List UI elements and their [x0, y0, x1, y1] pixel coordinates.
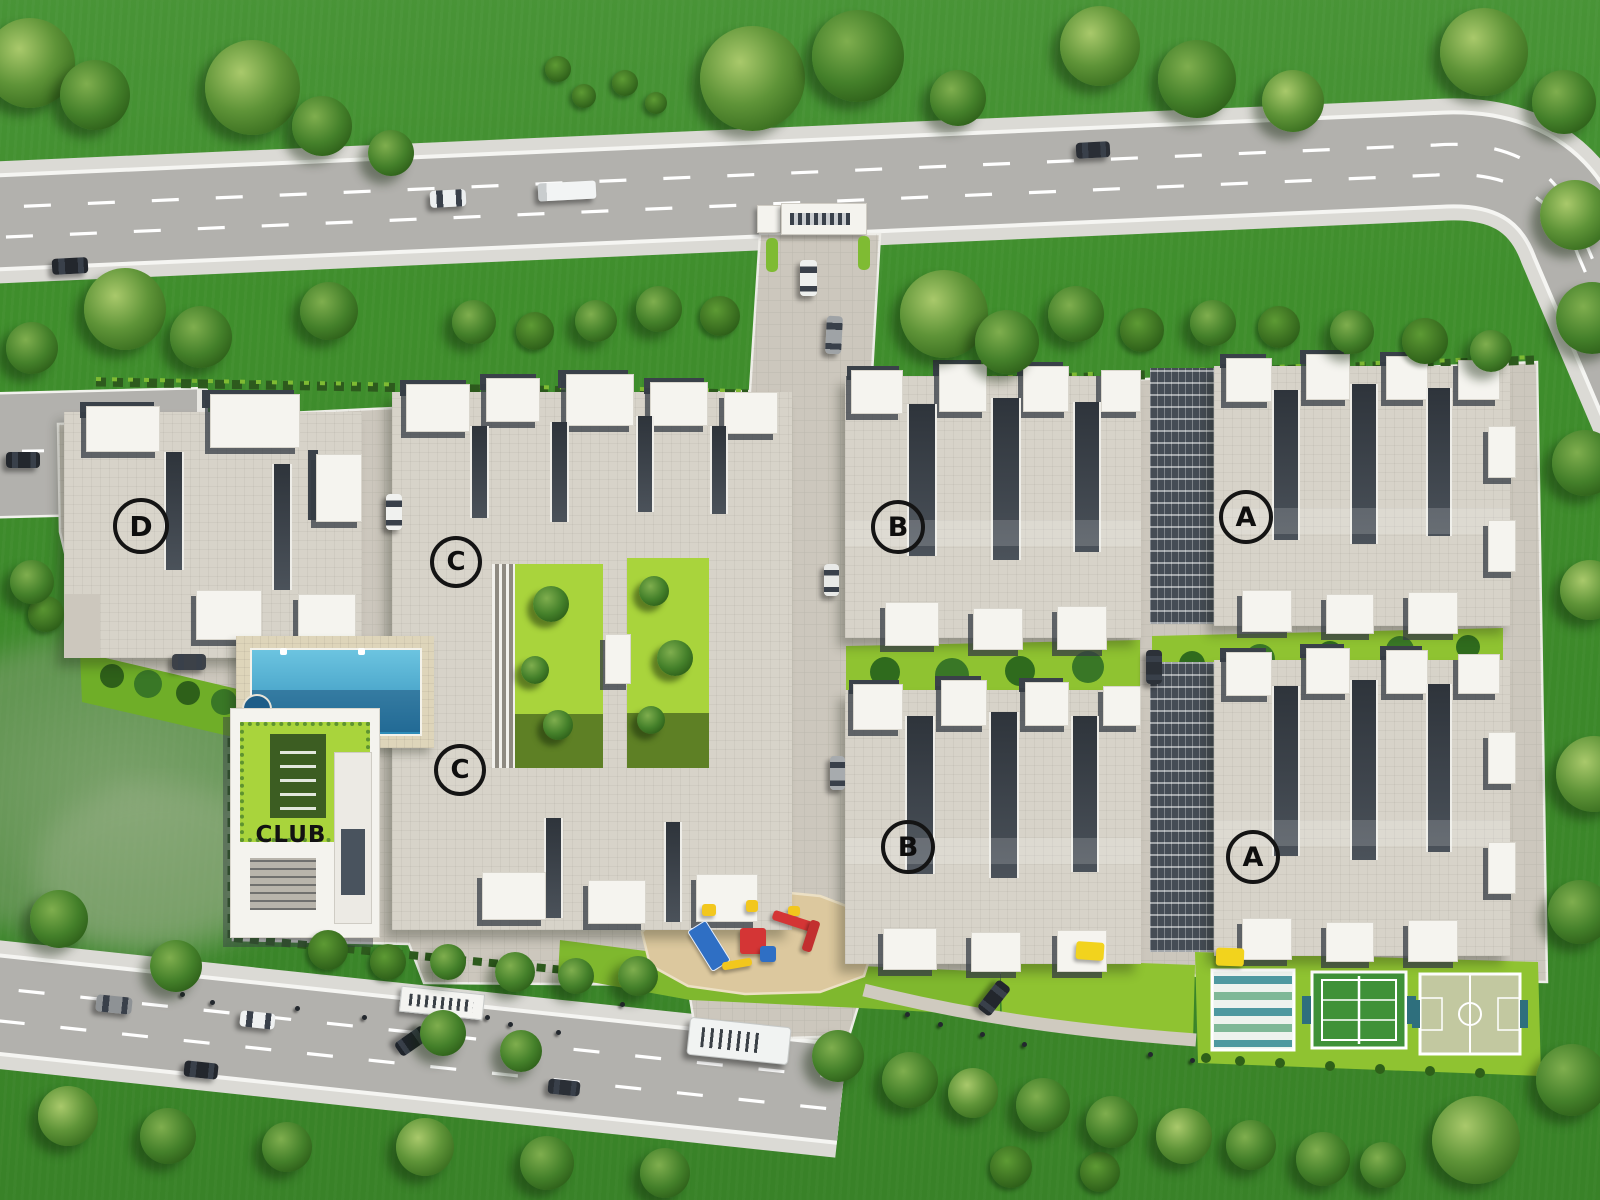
rooftop-block	[1386, 650, 1428, 694]
tower-gap	[544, 818, 563, 918]
tree	[1536, 1044, 1600, 1116]
rooftop-block	[1488, 520, 1516, 572]
tree	[430, 944, 466, 980]
tree	[1532, 70, 1596, 134]
tree	[1470, 330, 1512, 372]
site-plan-aerial-view: D	[0, 0, 1600, 1200]
tree	[396, 1118, 454, 1176]
pedestrian	[1022, 1042, 1027, 1047]
tree	[60, 60, 130, 130]
rooftop-block	[1488, 426, 1516, 478]
tower-facade-windows	[1150, 662, 1217, 952]
pedestrian	[210, 1000, 215, 1005]
tree	[6, 322, 58, 374]
rooftop-block	[588, 880, 646, 924]
tree	[975, 310, 1039, 374]
tower-gap	[710, 426, 728, 514]
rooftop-block	[1226, 652, 1272, 696]
pedestrian	[362, 1015, 367, 1020]
tree	[1060, 6, 1140, 86]
tree	[657, 640, 693, 676]
car	[430, 189, 467, 208]
pedestrian	[980, 1032, 985, 1037]
rooftop-block	[1242, 590, 1292, 632]
rooftop-block	[196, 590, 262, 640]
tree	[420, 1010, 466, 1056]
bus-roof-slats	[700, 1027, 764, 1053]
building-a-lower: A	[1150, 652, 1510, 964]
rooftop-block	[939, 364, 987, 412]
lawn-mat	[1216, 948, 1245, 967]
pedestrian	[1190, 1058, 1195, 1063]
tree	[558, 958, 594, 994]
building-b-lower: B	[845, 686, 1141, 968]
pedestrian	[905, 1012, 910, 1017]
shrub	[990, 1146, 1032, 1188]
rooftop-block	[724, 392, 778, 434]
club-roof-panel	[250, 858, 316, 910]
rooftop-block	[1226, 358, 1272, 402]
lawn-mat	[1075, 941, 1104, 961]
tower-gap	[272, 464, 292, 590]
tree	[170, 306, 232, 368]
rooftop-block	[650, 382, 708, 426]
tree	[575, 300, 617, 342]
tennis-court	[1302, 972, 1416, 1048]
shrub	[370, 944, 406, 980]
pedestrian	[180, 992, 185, 997]
rooftop-block	[86, 406, 160, 452]
rooftop-block	[971, 932, 1021, 972]
shrub	[700, 296, 740, 336]
pedestrian	[485, 1015, 490, 1020]
building-b-upper-label: B	[871, 500, 925, 554]
rooftop-block	[1306, 648, 1350, 694]
clubhouse: CLUB	[230, 708, 378, 936]
pedestrian	[508, 1022, 513, 1027]
tower-gap	[550, 422, 569, 522]
tree	[300, 282, 358, 340]
rooftop-block	[1458, 654, 1500, 694]
shrub	[1120, 308, 1164, 352]
tree	[84, 268, 166, 350]
tree	[700, 26, 805, 131]
car	[824, 564, 839, 596]
basketball-court	[1412, 974, 1528, 1054]
tree	[521, 656, 549, 684]
car	[1146, 650, 1162, 684]
play-mat	[702, 904, 716, 916]
rooftop-block	[486, 378, 540, 422]
tree	[1226, 1120, 1276, 1170]
building-a-upper: A	[1150, 360, 1510, 632]
shrub	[308, 930, 348, 970]
tree	[1016, 1078, 1070, 1132]
building-d: D	[64, 404, 362, 662]
tower-facade-windows	[1150, 368, 1217, 624]
shrub	[612, 70, 638, 96]
tree	[10, 560, 54, 604]
rooftop-block	[1326, 922, 1374, 962]
building-a-upper-label: A	[1219, 490, 1273, 544]
tree	[1048, 286, 1104, 342]
shrub	[1080, 1152, 1120, 1192]
tree	[1360, 1142, 1406, 1188]
building-c-lower-label: C	[434, 744, 486, 796]
building-a-lower-label: A	[1226, 830, 1280, 884]
rooftop-block	[1306, 354, 1350, 400]
tree	[150, 940, 202, 992]
building-c-complex: C C	[392, 386, 792, 930]
tower-gap	[470, 426, 489, 518]
gate-hedge-right	[858, 236, 870, 270]
gate-hedge-left	[766, 238, 778, 272]
pedestrian	[938, 1022, 943, 1027]
building-d-notch	[64, 594, 100, 658]
shrub	[645, 92, 667, 114]
rooftop-block	[941, 680, 987, 726]
rooftop-block	[1408, 920, 1458, 962]
tower-gap	[636, 416, 654, 512]
tree	[1190, 300, 1236, 346]
building-c-upper-label: C	[430, 536, 482, 588]
rooftop-block	[1488, 732, 1516, 784]
tree	[1156, 1108, 1212, 1164]
tree	[368, 130, 414, 176]
tree	[882, 1052, 938, 1108]
pedestrian	[1148, 1052, 1153, 1057]
tree	[495, 952, 535, 992]
car	[825, 316, 843, 355]
tree	[1262, 70, 1324, 132]
rooftop-block	[298, 594, 356, 638]
tree	[543, 710, 573, 740]
tree	[618, 956, 658, 996]
rooftop-block	[1023, 366, 1069, 412]
car	[6, 452, 40, 468]
tree	[1086, 1096, 1138, 1148]
tree	[292, 96, 352, 156]
car	[386, 494, 402, 530]
rooftop-block	[316, 454, 362, 522]
tree	[637, 706, 665, 734]
tree	[812, 10, 904, 102]
rooftop-block	[1326, 594, 1374, 634]
car	[52, 257, 89, 275]
tree	[533, 586, 569, 622]
tree	[205, 40, 300, 135]
rooftop-block	[883, 928, 937, 970]
car	[183, 1060, 218, 1079]
play-mat	[746, 900, 758, 912]
rooftop-block	[566, 374, 634, 426]
rooftop-block	[406, 384, 470, 432]
club-play-structure	[270, 734, 326, 818]
tree	[812, 1030, 864, 1082]
rooftop-block	[1103, 686, 1141, 726]
rooftop-block	[1101, 370, 1141, 412]
car	[800, 260, 817, 296]
tree	[1296, 1132, 1350, 1186]
louver-roof	[492, 564, 515, 768]
building-d-label: D	[113, 498, 169, 554]
tree	[520, 1136, 574, 1190]
tree	[1440, 8, 1528, 96]
rooftop-block	[853, 684, 903, 730]
tree	[30, 890, 88, 948]
pool-ladder	[280, 648, 287, 655]
gate-canopy-slats	[790, 213, 850, 225]
car	[95, 994, 133, 1015]
building-b-upper: B	[845, 370, 1141, 644]
tree	[500, 1030, 542, 1072]
tree	[38, 1086, 98, 1146]
car	[547, 1078, 580, 1096]
rooftop-block	[605, 634, 631, 684]
entrance-gate	[781, 203, 867, 235]
tree	[140, 1108, 196, 1164]
pedestrian	[556, 1030, 561, 1035]
sports-courts	[1195, 952, 1541, 1078]
tree	[930, 70, 986, 126]
rooftop-block	[1408, 592, 1458, 634]
tree	[262, 1122, 312, 1172]
tree	[639, 576, 669, 606]
rooftop-block	[210, 394, 300, 448]
shrub	[516, 312, 554, 350]
rooftop-block	[1057, 606, 1107, 650]
tree	[636, 286, 682, 332]
rooftop-block	[1488, 842, 1516, 894]
car	[1076, 141, 1111, 159]
tree	[640, 1148, 690, 1198]
rooftop-block	[482, 872, 546, 920]
truck	[538, 180, 597, 201]
rooftop-block	[1242, 918, 1292, 960]
rooftop-block	[1025, 682, 1069, 726]
tree	[1330, 310, 1374, 354]
striped-deck-court	[1212, 970, 1294, 1050]
tower-gap	[664, 822, 682, 922]
tree	[1158, 40, 1236, 118]
tree	[452, 300, 496, 344]
landscaped-courtyard	[627, 558, 709, 768]
rooftop-block	[851, 370, 903, 414]
club-label: CLUB	[236, 822, 346, 848]
tree	[948, 1068, 998, 1118]
shrub	[545, 56, 571, 82]
tower-gap	[164, 452, 184, 570]
pedestrian	[620, 1002, 625, 1007]
landscaped-courtyard	[515, 564, 603, 768]
building-b-lower-label: B	[881, 820, 935, 874]
shrub	[1402, 318, 1448, 364]
shrub	[572, 84, 596, 108]
entrance-gate-booth	[757, 205, 781, 233]
rooftop-block	[885, 602, 939, 646]
rooftop-block	[973, 608, 1023, 650]
car	[172, 654, 206, 670]
pedestrian	[295, 1006, 300, 1011]
shrub	[1258, 306, 1300, 348]
pool-ladder	[358, 648, 365, 655]
car	[830, 756, 845, 790]
play-cube	[760, 946, 776, 962]
structure-rungs	[280, 742, 316, 810]
tree	[1432, 1096, 1520, 1184]
